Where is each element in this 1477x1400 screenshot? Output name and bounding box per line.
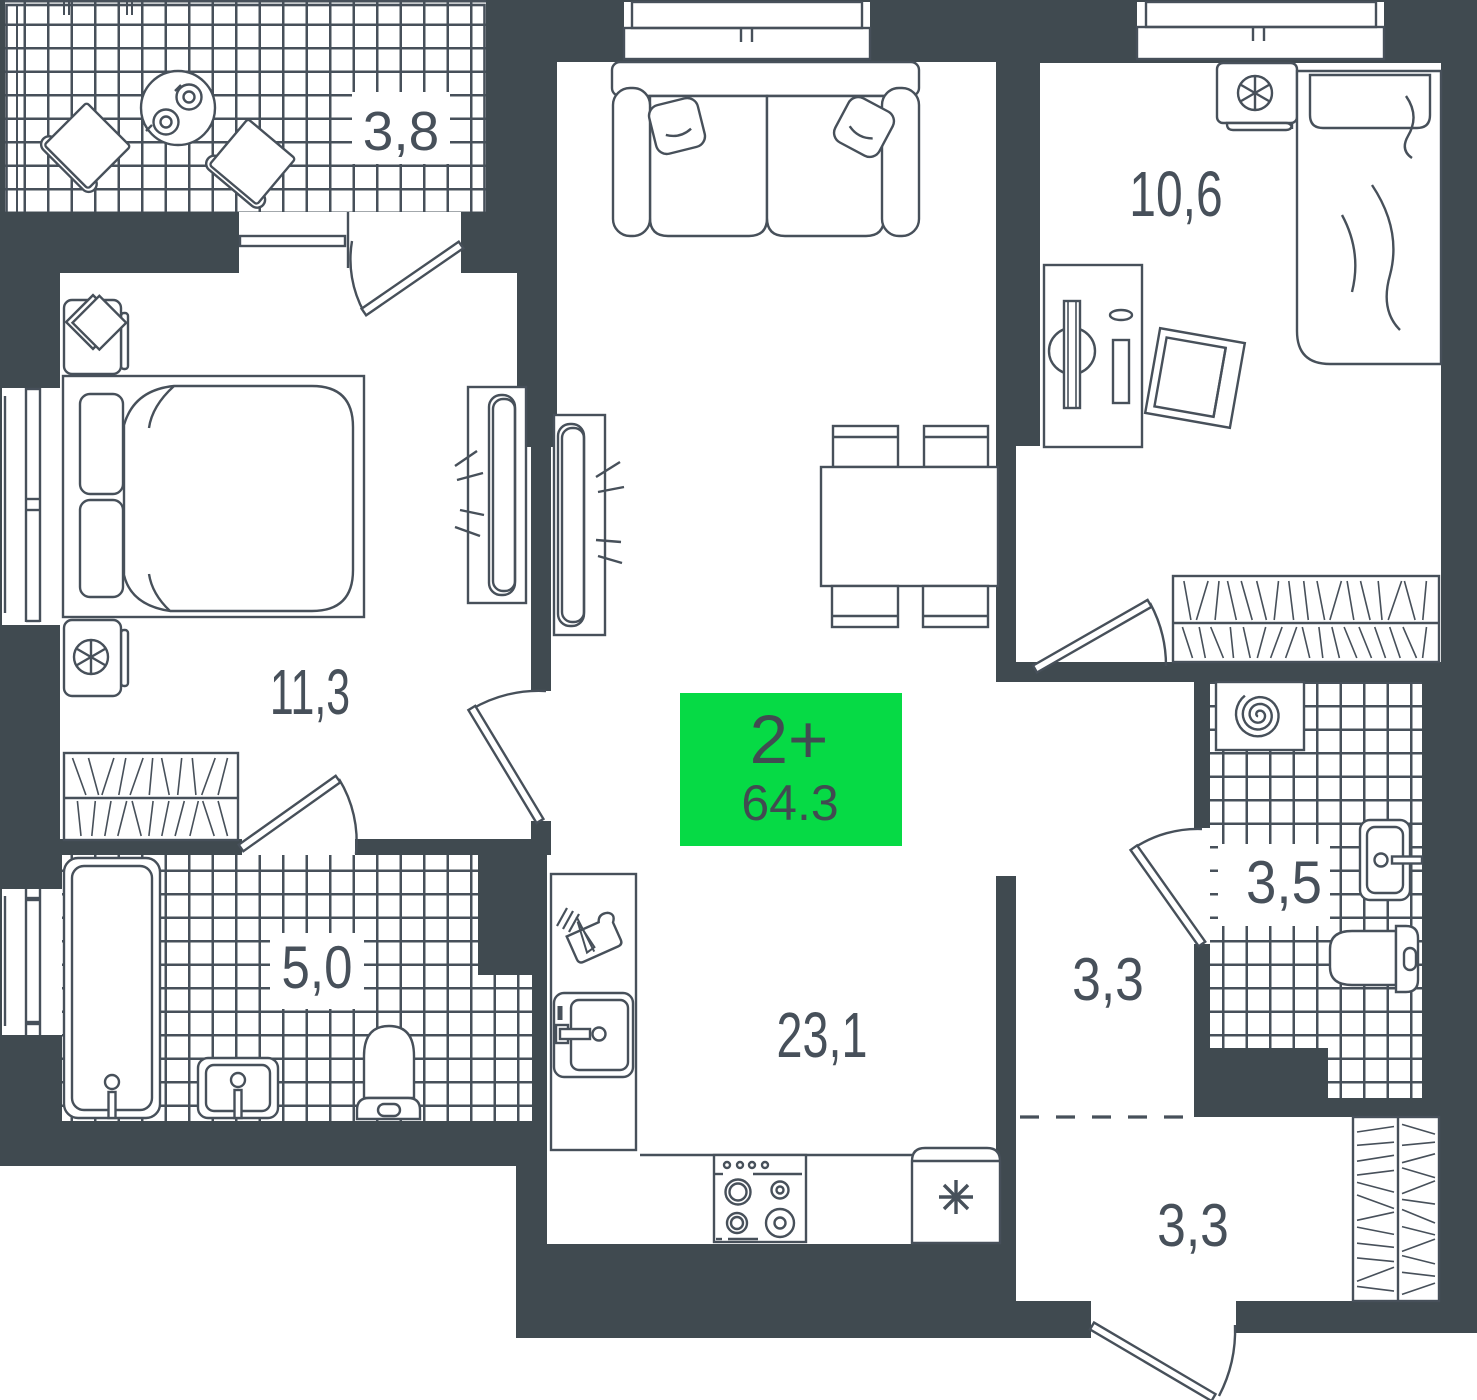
svg-text:5,0: 5,0 xyxy=(282,934,353,1001)
svg-text:11,3: 11,3 xyxy=(270,656,350,728)
svg-text:10,6: 10,6 xyxy=(1129,158,1222,229)
svg-text:3,8: 3,8 xyxy=(363,100,439,162)
svg-text:3,3: 3,3 xyxy=(1072,945,1144,1013)
svg-text:2+: 2+ xyxy=(750,701,829,778)
svg-text:3,3: 3,3 xyxy=(1157,1191,1229,1259)
svg-text:3,5: 3,5 xyxy=(1246,850,1322,917)
svg-text:64.3: 64.3 xyxy=(741,775,838,831)
svg-text:23,1: 23,1 xyxy=(777,999,868,1071)
